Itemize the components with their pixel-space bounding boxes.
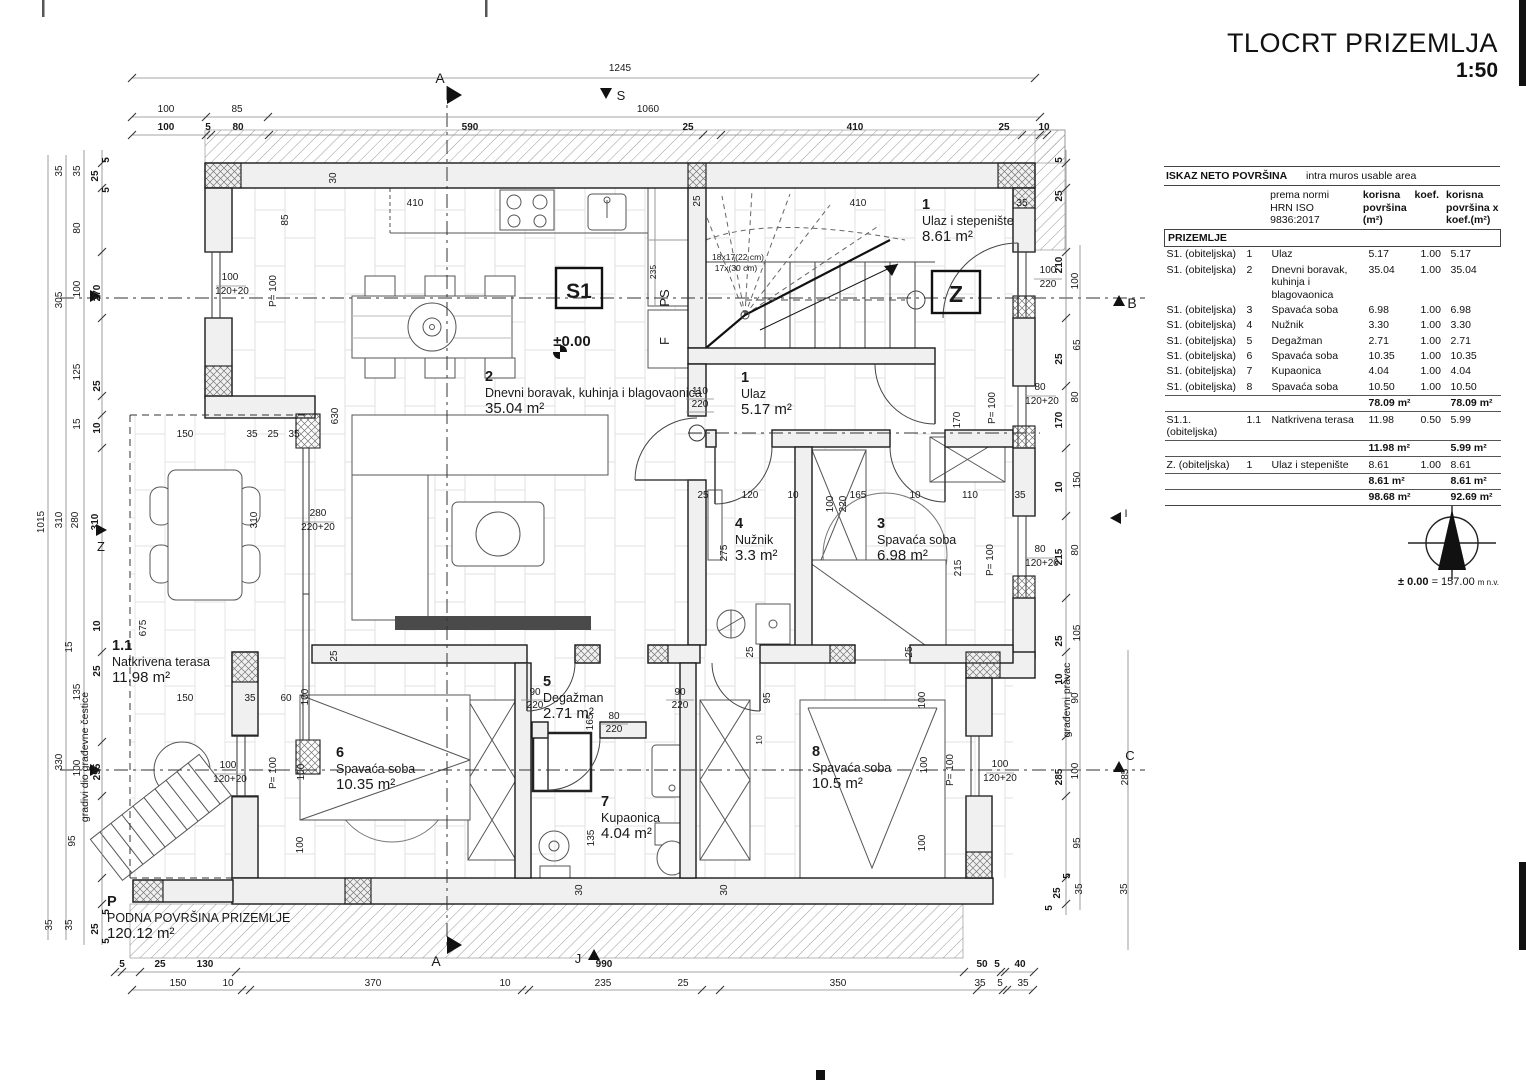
dim-label: 35 — [54, 165, 65, 177]
room-area: 2.71 m² — [543, 705, 594, 722]
plan-label: F — [657, 337, 672, 345]
dim-label: 25 — [267, 429, 279, 440]
dim-label: 170 — [952, 411, 963, 428]
area-table-cell: 3.30 — [1449, 318, 1501, 333]
dim-label: 220 — [527, 700, 544, 711]
area-table-cell: 1.00 — [1419, 457, 1449, 473]
area-table-cell — [1165, 473, 1245, 489]
area-table-cell: 98.68 m² — [1367, 489, 1419, 505]
plan-label: 235 — [648, 265, 658, 279]
area-table-cell: 8.61 m² — [1449, 473, 1501, 489]
area-table-cell: 8 — [1245, 379, 1270, 395]
area-table-cell: 4.04 — [1449, 364, 1501, 379]
area-table-cell: 1.00 — [1419, 318, 1449, 333]
dim-label: 1015 — [36, 510, 47, 533]
area-table-header: ISKAZ NETO POVRŠINA intra muros usable a… — [1164, 166, 1500, 186]
dim-label: 1060 — [637, 104, 660, 115]
area-table-cell — [1270, 489, 1367, 505]
area-table-row: S1. (obiteljska)5Degažman2.711.002.71 — [1165, 333, 1501, 348]
dim-label: 80 — [72, 222, 83, 234]
dim-label: 310 — [54, 511, 65, 528]
dim-label: 410 — [407, 198, 424, 209]
area-table-row: Z. (obiteljska)1Ulaz i stepenište8.611.0… — [1165, 457, 1501, 473]
dim-label: 5 — [101, 157, 112, 163]
dim-label: 60 — [280, 693, 292, 704]
drawing-title: TLOCRT PRIZEMLJA — [1227, 28, 1498, 59]
area-table-cell: Degažman — [1270, 333, 1367, 348]
dim-label: 35 — [974, 978, 986, 989]
dim-label: 150 — [177, 429, 194, 440]
area-table-cell: 11.98 m² — [1367, 440, 1419, 456]
dim-label: 35 — [1014, 490, 1026, 501]
area-table-row: S1. (obiteljska)8Spavaća soba10.501.0010… — [1165, 379, 1501, 395]
dim-label: 35 — [72, 165, 83, 177]
room-number: 1 — [922, 197, 930, 213]
room-number: 1.1 — [112, 638, 132, 654]
plan-label: C — [1125, 748, 1134, 763]
dim-label: 220 — [838, 495, 849, 512]
dim-label: 25 — [154, 959, 166, 970]
room-area: 11.98 m² — [112, 669, 170, 686]
room-name: Degažman — [543, 691, 603, 705]
plan-label: I — [1124, 508, 1127, 520]
room-name: Ulaz — [741, 387, 766, 401]
room-name: Kupaonica — [601, 811, 660, 825]
area-table-cell: Spavaća soba — [1270, 349, 1367, 364]
dim-label: 25 — [692, 195, 703, 207]
area-table-cell: 5.17 — [1367, 246, 1419, 262]
col-norm: prema normiHRN ISO9836:2017 — [1268, 189, 1361, 226]
dim-label: 25 — [697, 490, 709, 501]
area-table-row: S1. (obiteljska)2Dnevni boravak, kuhinja… — [1165, 262, 1501, 302]
dim-label: 120+20 — [1025, 558, 1059, 569]
section-A-flag-top — [447, 86, 462, 104]
dim-label: 10 — [92, 620, 103, 632]
area-table-cell: S1. (obiteljska) — [1165, 364, 1245, 379]
area-table-cell: Ulaz — [1270, 246, 1367, 262]
plan-label: građevni pravac — [1061, 663, 1073, 738]
area-table-cell: Natkrivena terasa — [1270, 412, 1367, 441]
dim-label: 25 — [745, 646, 756, 658]
dim-label: 310 — [249, 511, 260, 528]
dim-label: 1245 — [609, 63, 632, 74]
dim-label: 100 — [220, 760, 237, 771]
room-number: 7 — [601, 794, 609, 810]
area-table-total-row: 98.68 m²92.69 m² — [1165, 489, 1501, 505]
dim-label: 150 — [1072, 471, 1083, 488]
area-table-cell: Z. (obiteljska) — [1165, 457, 1245, 473]
dining-table — [352, 276, 515, 378]
dim-label: 330 — [54, 753, 65, 770]
dim-label: 220 — [692, 399, 709, 410]
plan-label: 18x17(22 cm) — [712, 252, 764, 262]
dim-label: 80 — [1034, 382, 1046, 393]
dim-label: 25 — [677, 978, 689, 989]
dim-label: 35 — [64, 919, 75, 931]
room-name: Ulaz i stepenište — [922, 214, 1014, 228]
area-table-cell — [1245, 489, 1270, 505]
room-number: 1 — [741, 370, 749, 386]
dim-label: 210 — [1054, 256, 1065, 273]
sink-icon — [588, 194, 626, 230]
area-table-cell — [1270, 473, 1367, 489]
dim-label: 295 — [92, 763, 103, 780]
area-table-cell: 35.04 — [1449, 262, 1501, 302]
dim-label: 35 — [246, 429, 258, 440]
room-area: 3.3 m² — [735, 547, 778, 564]
dim-label: 220+20 — [301, 522, 335, 533]
plan-label: B — [1127, 295, 1136, 311]
area-table-row: S1. (obiteljska)1Ulaz5.171.005.17 — [1165, 246, 1501, 262]
area-table-cell: 35.04 — [1367, 262, 1419, 302]
room-name: Natkrivena terasa — [112, 655, 210, 669]
dim-label: P= 100 — [987, 392, 998, 424]
room-number: P — [107, 894, 117, 910]
dim-label: 25 — [682, 122, 694, 133]
dim-label: 30 — [328, 172, 339, 184]
dim-label: 220 — [606, 724, 623, 735]
dim-label: 270 — [92, 284, 103, 301]
dim-label: 100 — [158, 104, 175, 115]
dim-label: 100 — [295, 836, 306, 853]
area-table-grid: PRIZEMLJE S1. (obiteljska)1Ulaz5.171.005… — [1164, 229, 1501, 507]
dim-label: 220 — [1040, 279, 1057, 290]
area-table-cell: 92.69 m² — [1449, 489, 1501, 505]
room-name: PODNA POVRŠINA PRIZEMLJE — [107, 910, 290, 925]
plan-label: PS — [657, 289, 672, 307]
dim-label: 25 — [1052, 887, 1063, 899]
area-table-cell: Dnevni boravak, kuhinja i blagovaonica — [1270, 262, 1367, 302]
floor-plan-canvas: 1245100851060100580590254102510410410353… — [0, 0, 1526, 1080]
area-table-cell: Spavaća soba — [1270, 379, 1367, 395]
dim-label: 80 — [1070, 544, 1081, 556]
plan-label: J — [575, 951, 582, 966]
dim-label: 100 — [992, 759, 1009, 770]
dim-label: 305 — [54, 291, 65, 308]
dim-label: P= 100 — [268, 275, 279, 307]
area-table-cell: 1.00 — [1419, 333, 1449, 348]
area-table-cell: S1. (obiteljska) — [1165, 349, 1245, 364]
dim-label: 280 — [310, 508, 327, 519]
dim-label: 120 — [742, 490, 759, 501]
area-table-cell: 5.17 — [1449, 246, 1501, 262]
area-table-cell: 1.00 — [1419, 262, 1449, 302]
plan-label: S — [617, 88, 626, 103]
area-table-cell: S1. (obiteljska) — [1165, 379, 1245, 395]
dim-label: 5 — [101, 187, 112, 193]
area-table-sub-row: 11.98 m²5.99 m² — [1165, 440, 1501, 456]
plan-label: Z — [949, 281, 963, 307]
dim-label: 95 — [762, 692, 773, 704]
area-table-cell: 2.71 — [1449, 333, 1501, 348]
dim-label: 90 — [529, 687, 541, 698]
area-table-cell: 8.61 — [1449, 457, 1501, 473]
room-area: 5.17 m² — [741, 401, 792, 418]
title-block: TLOCRT PRIZEMLJA 1:50 — [1227, 28, 1498, 83]
room-area: 10.5 m² — [812, 775, 863, 792]
area-table-cell — [1419, 395, 1449, 411]
room-number: 4 — [735, 516, 743, 532]
area-table-row: S1. (obiteljska)6Spavaća soba10.351.0010… — [1165, 349, 1501, 364]
dim-label: 100 — [825, 495, 836, 512]
room-name: Spavaća soba — [812, 761, 891, 775]
dim-label: P= 100 — [985, 544, 996, 576]
dim-label: 350 — [830, 978, 847, 989]
dim-label: 280 — [70, 511, 81, 528]
dim-label: 15 — [64, 641, 75, 653]
dim-label: 235 — [595, 978, 612, 989]
area-table-title: ISKAZ NETO POVRŠINA — [1166, 170, 1306, 182]
dim-label: 10 — [499, 978, 511, 989]
dim-label: 105 — [1072, 624, 1083, 641]
area-table-row: S1.1. (obiteljska)1.1Natkrivena terasa11… — [1165, 412, 1501, 441]
dim-label: 120+20 — [983, 773, 1017, 784]
dim-label: 5 — [205, 122, 211, 133]
area-table-column-headers: prema normiHRN ISO9836:2017 korisnapovrš… — [1164, 186, 1500, 228]
dim-label: 410 — [850, 198, 867, 209]
dim-label: 215 — [953, 559, 964, 576]
area-table-cell: 6.98 — [1367, 302, 1419, 317]
stove-icon — [500, 190, 554, 230]
room-area: 120.12 m² — [107, 925, 175, 942]
area-table-cell: 4.04 — [1367, 364, 1419, 379]
area-table-cell: 11.98 — [1367, 412, 1419, 441]
dim-label: 100 — [919, 756, 930, 773]
dim-label: 10 — [754, 735, 764, 745]
dim-label: 310 — [90, 513, 101, 530]
dim-label: 10 — [1038, 122, 1050, 133]
dim-label: 590 — [462, 122, 479, 133]
area-table-cell: 8.61 m² — [1367, 473, 1419, 489]
dim-label: 630 — [330, 407, 341, 424]
area-table-cell: 7 — [1245, 364, 1270, 379]
dim-label: 100 — [300, 688, 311, 705]
dim-label: 120+20 — [215, 286, 249, 297]
dim-label: 125 — [72, 363, 83, 380]
dim-label: 30 — [574, 884, 585, 896]
dim-label: 90 — [674, 687, 686, 698]
dim-label: 80 — [1034, 544, 1046, 555]
area-table-cell: 1.1 — [1245, 412, 1270, 441]
dim-label: 100 — [72, 280, 83, 297]
area-table-cell: 78.09 m² — [1449, 395, 1501, 411]
dim-label: 100 — [917, 691, 928, 708]
dim-label: 40 — [1014, 959, 1026, 970]
dim-label: 80 — [1070, 391, 1081, 403]
plan-label: ±0.00 — [553, 333, 590, 350]
dim-label: 95 — [1072, 837, 1083, 849]
col-area: korisnapovršina(m²) — [1361, 189, 1413, 226]
area-table-cell — [1245, 473, 1270, 489]
area-table-row: S1. (obiteljska)7Kupaonica4.041.004.04 — [1165, 364, 1501, 379]
dim-label: 35 — [44, 919, 55, 931]
dim-label: 10 — [222, 978, 234, 989]
area-table-cell: 6 — [1245, 349, 1270, 364]
dim-label: 25 — [90, 923, 101, 935]
dim-label: 150 — [170, 978, 187, 989]
area-table-cell: Kupaonica — [1270, 364, 1367, 379]
dim-label: 85 — [280, 214, 291, 226]
area-table-cell: 3 — [1245, 302, 1270, 317]
dim-label: 25 — [1054, 353, 1065, 365]
dim-label: 35 — [244, 693, 256, 704]
area-table-cell — [1165, 440, 1245, 456]
area-table-cell: 10.50 — [1367, 379, 1419, 395]
dim-label: 5 — [1044, 905, 1055, 911]
dim-label: 5 — [1062, 873, 1073, 879]
area-table: ISKAZ NETO POVRŠINA intra muros usable a… — [1164, 166, 1500, 506]
dim-label: 25 — [904, 646, 915, 658]
area-table-cell — [1165, 489, 1245, 505]
area-table-row: S1. (obiteljska)4Nužnik3.301.003.30 — [1165, 318, 1501, 333]
area-table-cell: 10.35 — [1449, 349, 1501, 364]
dim-label: 410 — [847, 122, 864, 133]
drawing-scale: 1:50 — [1227, 59, 1498, 83]
dim-label: 285 — [1054, 768, 1065, 785]
area-table-subtitle: intra muros usable area — [1306, 170, 1416, 182]
dim-label: 990 — [596, 959, 613, 970]
dim-label: P= 100 — [945, 754, 956, 786]
dim-label: 25 — [1054, 190, 1065, 202]
area-table-cell: 2 — [1245, 262, 1270, 302]
dim-label: 130 — [197, 959, 214, 970]
area-table-sub-row: 78.09 m²78.09 m² — [1165, 395, 1501, 411]
area-table-cell: Spavaća soba — [1270, 302, 1367, 317]
room-name: Spavaća soba — [877, 533, 956, 547]
area-table-cell: Ulaz i stepenište — [1270, 457, 1367, 473]
area-table-cell: 5 — [1245, 333, 1270, 348]
dim-label: 220 — [672, 700, 689, 711]
dim-label: 65 — [1072, 339, 1083, 351]
room-name: Dnevni boravak, kuhinja i blagovaonica — [485, 386, 702, 400]
dim-label: 100 — [1070, 762, 1081, 779]
area-table-cell: 1.00 — [1419, 302, 1449, 317]
room-name: Spavaća soba — [336, 762, 415, 776]
dim-label: 25 — [90, 170, 101, 182]
plan-label: A — [435, 70, 445, 86]
dim-label: 5 — [1054, 157, 1065, 163]
drawing-sheet: 1245100851060100580590254102510410410353… — [0, 0, 1526, 1080]
dim-label: 25 — [1054, 635, 1065, 647]
dim-label: 100 — [296, 763, 307, 780]
room-number: 8 — [812, 744, 820, 760]
dim-label: 165 — [850, 490, 867, 501]
room-number: 3 — [877, 516, 885, 532]
dim-label: P= 100 — [268, 757, 279, 789]
dim-label: 85 — [231, 104, 243, 115]
level-note: ± 0.00 = 157.00 m n.v. — [1398, 576, 1499, 588]
dim-label: 110 — [962, 490, 978, 501]
dim-label: 80 — [232, 122, 244, 133]
dim-label: 25 — [92, 665, 103, 677]
dim-label: 5 — [997, 978, 1003, 989]
shower-icon — [533, 733, 591, 791]
col-areax: korisnapovršina xkoef.(m²) — [1444, 189, 1500, 226]
plan-label: S1 — [566, 280, 592, 303]
dim-label: 135 — [586, 829, 597, 846]
dim-label: 30 — [719, 884, 730, 896]
area-table-cell: 5.99 m² — [1449, 440, 1501, 456]
room-number: 2 — [485, 369, 493, 385]
area-table-cell: 10.50 — [1449, 379, 1501, 395]
area-table-cell: 4 — [1245, 318, 1270, 333]
area-table-cell: 3.30 — [1367, 318, 1419, 333]
table-section-row: PRIZEMLJE — [1165, 229, 1501, 246]
area-table-cell — [1270, 395, 1367, 411]
area-table-cell: 6.98 — [1449, 302, 1501, 317]
area-table-cell: 10.35 — [1367, 349, 1419, 364]
dim-label: 35 — [1074, 883, 1085, 895]
area-table-cell — [1419, 489, 1449, 505]
dim-label: 150 — [177, 693, 194, 704]
area-table-row: S1. (obiteljska)3Spavaća soba6.981.006.9… — [1165, 302, 1501, 317]
dim-label: 275 — [719, 544, 730, 561]
room-area: 6.98 m² — [877, 547, 928, 564]
dim-label: 370 — [365, 978, 382, 989]
dim-label: 25 — [92, 380, 103, 392]
dim-label: 15 — [72, 418, 83, 430]
dim-label: 675 — [138, 619, 149, 636]
dim-label: 35 — [1016, 198, 1028, 209]
dim-label: 5 — [119, 959, 125, 970]
section-B-flag — [1113, 295, 1125, 306]
area-table-cell — [1270, 440, 1367, 456]
tv-bench — [395, 616, 591, 630]
dim-label: 100 — [222, 272, 239, 283]
area-table-cell: 78.09 m² — [1367, 395, 1419, 411]
plan-label: 17x(30 cm) — [715, 263, 758, 273]
dim-label: 100 — [1070, 272, 1081, 289]
dim-label: 100 — [158, 122, 175, 133]
area-table-cell: S1. (obiteljska) — [1165, 302, 1245, 317]
area-table-cell — [1419, 440, 1449, 456]
area-table-cell: 8.61 — [1367, 457, 1419, 473]
dim-label: 10 — [909, 490, 921, 501]
room-name: Nužnik — [735, 533, 774, 547]
area-table-cell: 5.99 — [1449, 412, 1501, 441]
area-table-cell: 0.50 — [1419, 412, 1449, 441]
area-table-cell: Nužnik — [1270, 318, 1367, 333]
dim-label: 285 — [1120, 768, 1131, 785]
area-table-cell: S1. (obiteljska) — [1165, 318, 1245, 333]
area-table-cell: S1.1. (obiteljska) — [1165, 412, 1245, 441]
dim-label: 25 — [329, 650, 340, 662]
room-number: 6 — [336, 745, 344, 761]
dim-label: 100 — [917, 834, 928, 851]
dim-label: 120+20 — [1025, 396, 1059, 407]
room-number: 5 — [543, 674, 551, 690]
room-area: 35.04 m² — [485, 400, 544, 417]
plan-label: Z — [97, 539, 105, 554]
area-table-cell — [1165, 395, 1245, 411]
area-table-cell — [1245, 440, 1270, 456]
plan-label: gradivi dio građevne čestice — [79, 692, 91, 822]
dim-label: 170 — [1054, 411, 1065, 428]
area-table-cell: S1. (obiteljska) — [1165, 333, 1245, 348]
area-table-cell: S1. (obiteljska) — [1165, 246, 1245, 262]
dim-label: 95 — [67, 835, 78, 847]
area-table-cell: 1 — [1245, 246, 1270, 262]
dim-label: 50 — [976, 959, 988, 970]
col-koef: koef. — [1413, 189, 1444, 226]
area-table-cell: 2.71 — [1367, 333, 1419, 348]
area-table-cell — [1245, 395, 1270, 411]
area-table-cell: 1 — [1245, 457, 1270, 473]
dim-label: 80 — [608, 711, 620, 722]
dim-label: 120+20 — [213, 774, 247, 785]
plan-label: A — [431, 953, 441, 969]
window — [205, 252, 232, 318]
